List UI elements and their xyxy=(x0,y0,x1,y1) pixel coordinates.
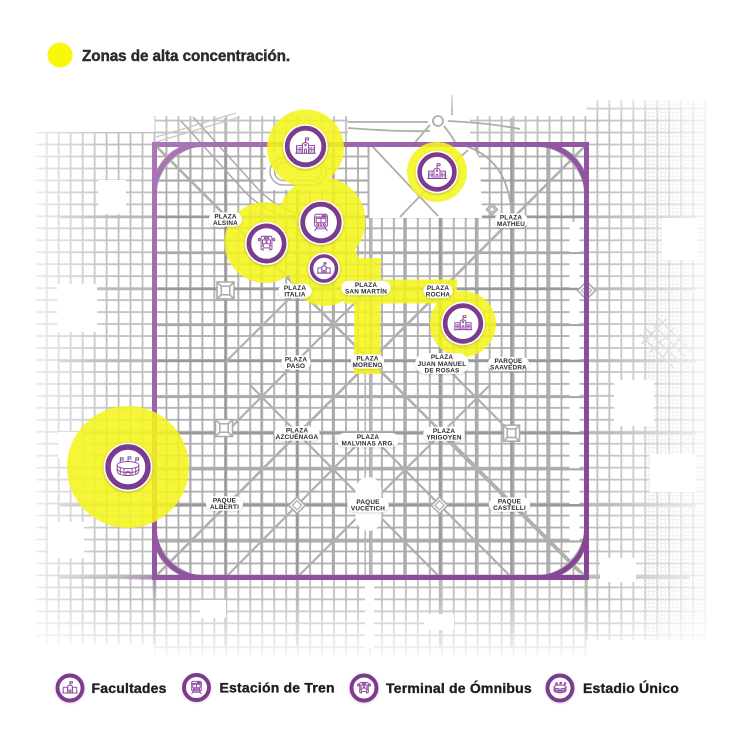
svg-text:CASTELLI: CASTELLI xyxy=(493,505,526,512)
svg-text:Zonas de alta concentración.: Zonas de alta concentración. xyxy=(82,48,290,65)
svg-text:MORENO: MORENO xyxy=(353,362,383,369)
svg-text:SAAVEDRA: SAAVEDRA xyxy=(490,365,527,372)
svg-text:Terminal de Ómnibus: Terminal de Ómnibus xyxy=(386,679,532,696)
svg-text:ROCHA: ROCHA xyxy=(426,292,451,299)
svg-text:Facultades: Facultades xyxy=(92,680,167,696)
svg-text:Estadio Único: Estadio Único xyxy=(583,679,679,696)
svg-text:DE ROSAS: DE ROSAS xyxy=(425,367,461,374)
svg-text:VUCETICH: VUCETICH xyxy=(351,506,385,513)
svg-text:PASO: PASO xyxy=(287,363,305,370)
svg-text:ALBERTI: ALBERTI xyxy=(210,504,239,511)
svg-text:AZCUÉNAGA: AZCUÉNAGA xyxy=(276,432,319,441)
svg-text:SAN MARTÍN: SAN MARTÍN xyxy=(345,287,387,296)
svg-text:ALSINA: ALSINA xyxy=(213,220,238,227)
svg-text:Estación de Tren: Estación de Tren xyxy=(220,679,335,695)
svg-text:ITALIA: ITALIA xyxy=(284,292,305,299)
svg-text:MALVINAS ARG.: MALVINAS ARG. xyxy=(341,441,394,448)
svg-text:YRIGOYEN: YRIGOYEN xyxy=(426,434,462,441)
svg-text:MATHEU: MATHEU xyxy=(497,221,525,228)
